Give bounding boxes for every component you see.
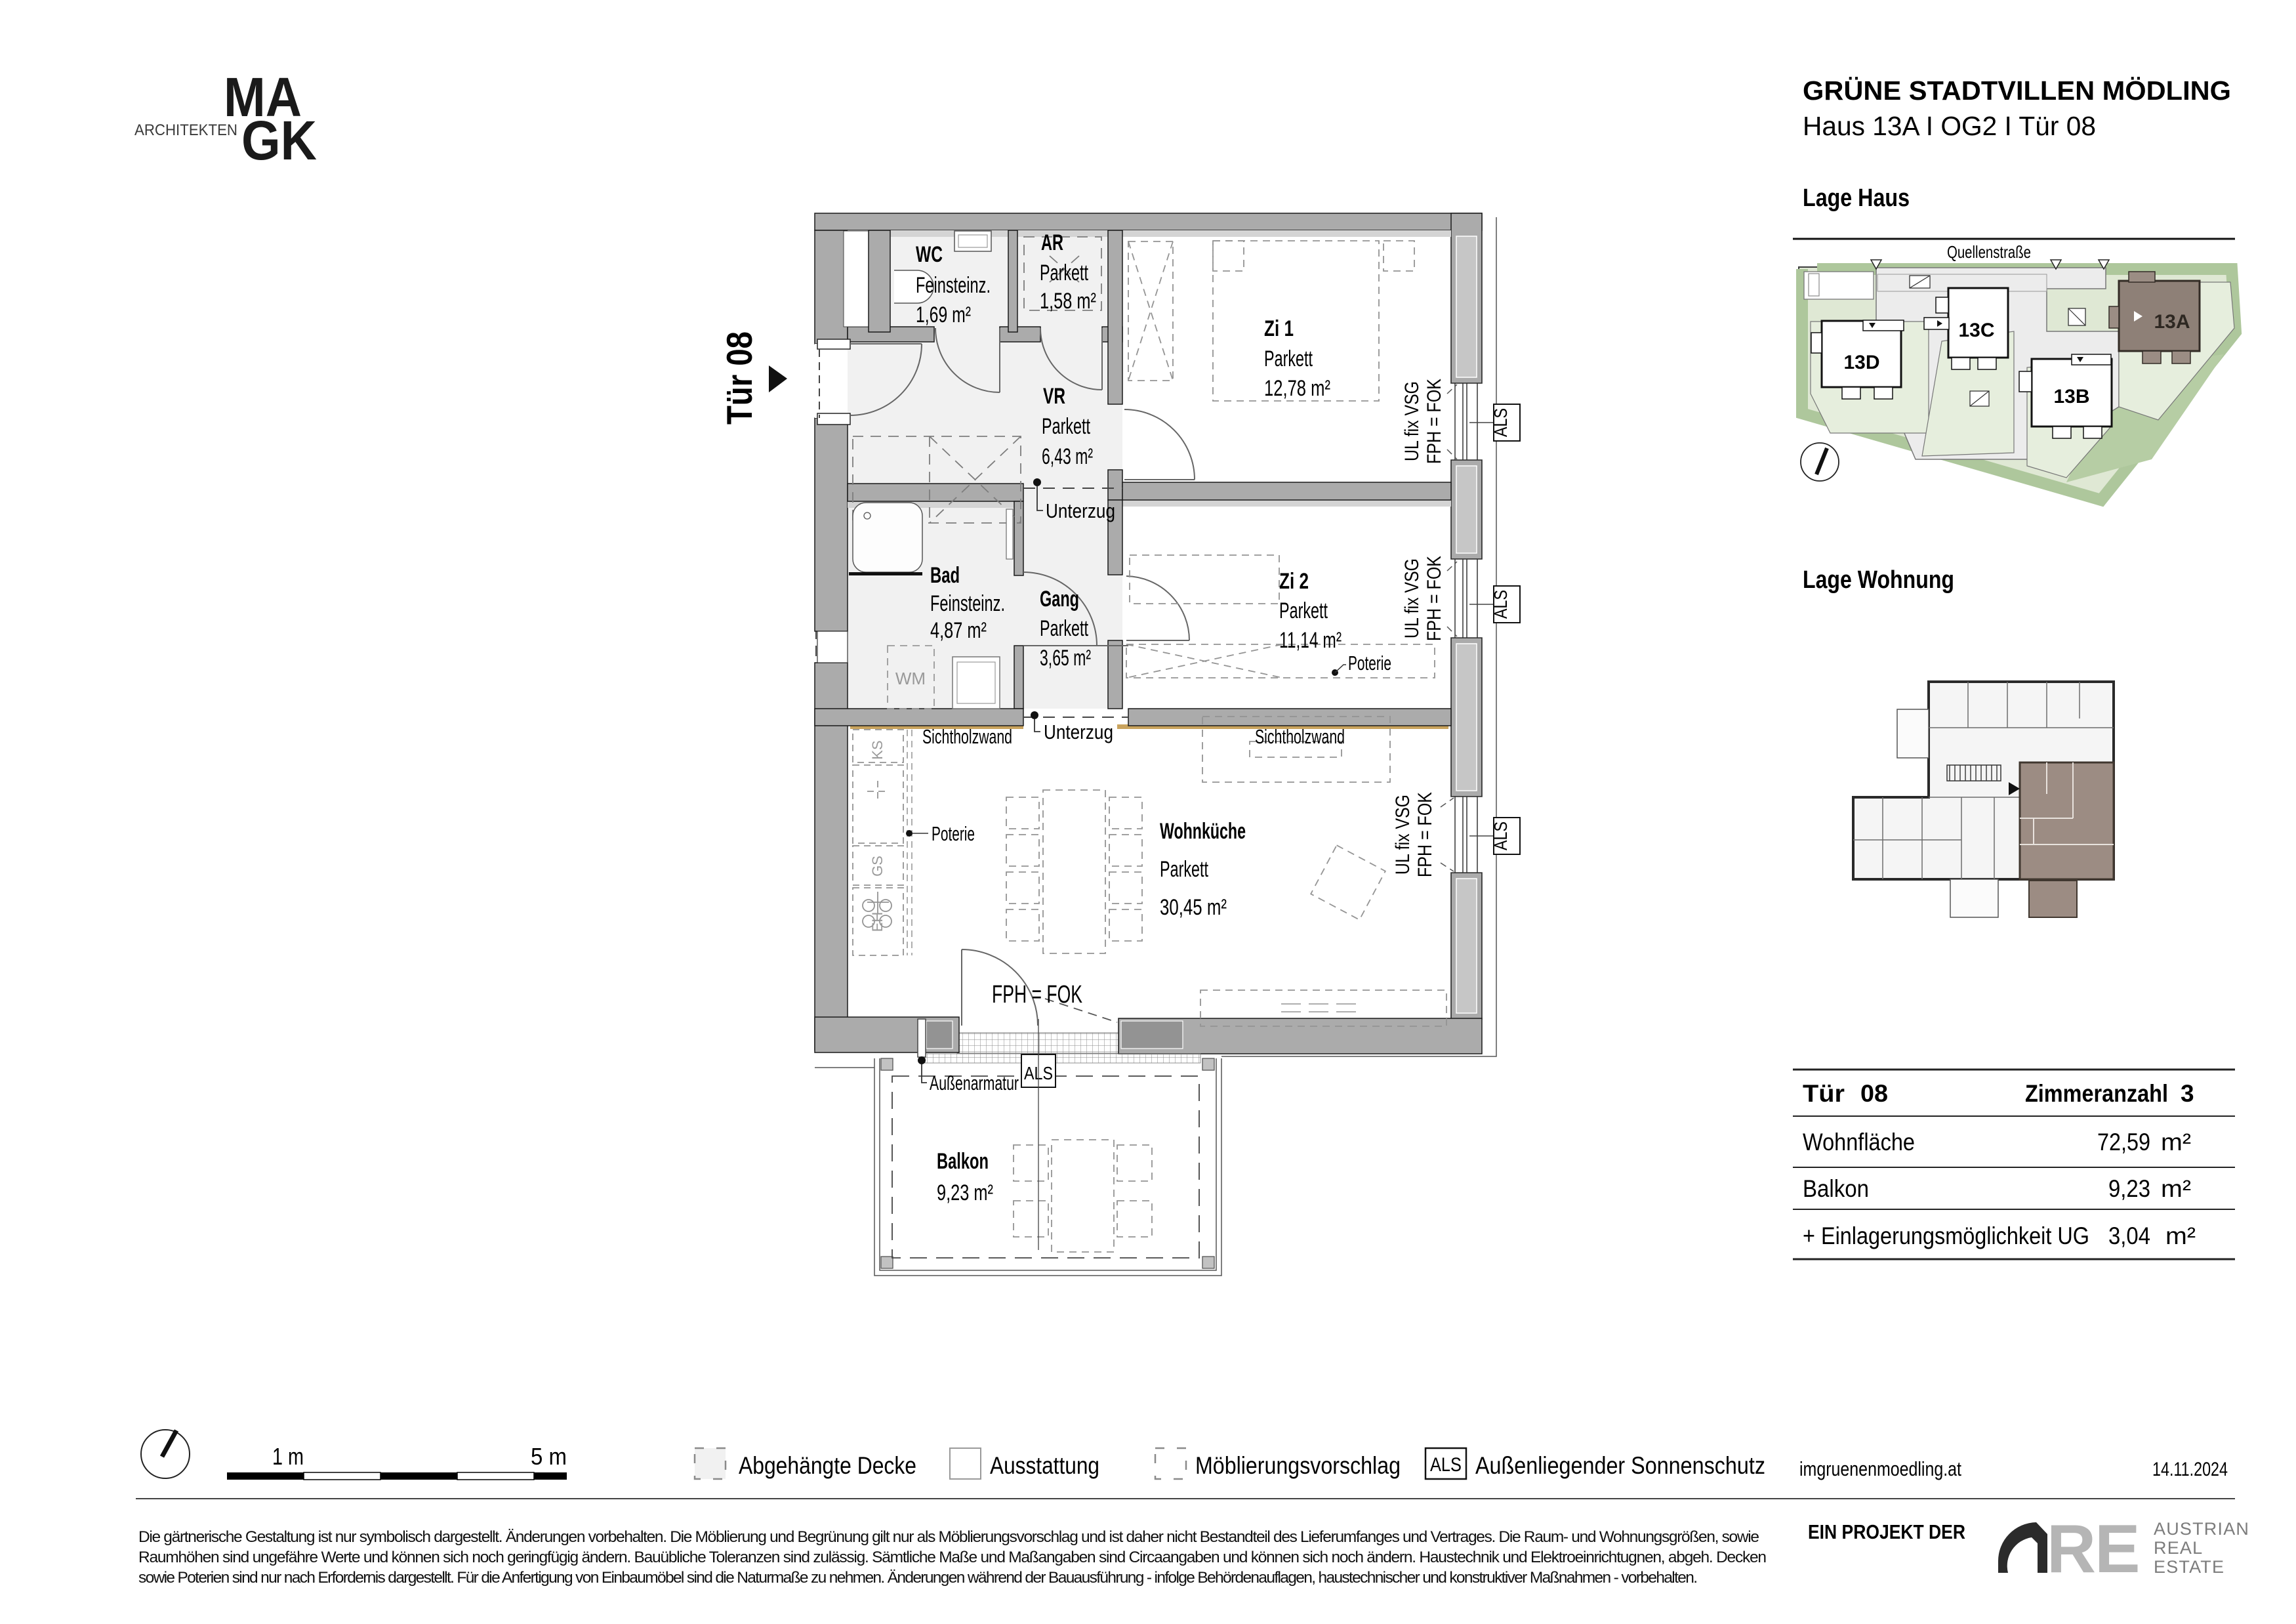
svg-text:1 m: 1 m	[272, 1443, 304, 1470]
svg-text:Unterzug: Unterzug	[1046, 499, 1115, 522]
svg-text:Parkett: Parkett	[1279, 598, 1328, 623]
svg-text:GK: GK	[241, 110, 317, 171]
svg-text:Bad: Bad	[930, 563, 960, 588]
svg-text:Ausstattung: Ausstattung	[990, 1452, 1099, 1479]
svg-text:m²: m²	[2165, 1222, 2196, 1249]
svg-text:1,58 m²: 1,58 m²	[1040, 289, 1096, 314]
svg-text:imgruenenmoedling.at: imgruenenmoedling.at	[1799, 1457, 1961, 1480]
svg-text:Lage Wohnung: Lage Wohnung	[1803, 566, 1954, 594]
svg-text:ALS: ALS	[1490, 408, 1511, 437]
svg-text:ALS: ALS	[1430, 1454, 1462, 1476]
svg-text:UL fix VSG: UL fix VSG	[1392, 795, 1414, 875]
svg-text:6,43 m²: 6,43 m²	[1042, 444, 1093, 469]
svg-text:m²: m²	[2161, 1129, 2191, 1156]
svg-text:13B: 13B	[2053, 386, 2089, 407]
svg-text:14.11.2024: 14.11.2024	[2152, 1459, 2228, 1480]
svg-text:FPH = FOK: FPH = FOK	[1424, 379, 1445, 464]
svg-text:12,78 m²: 12,78 m²	[1264, 376, 1330, 401]
svg-text:REAL: REAL	[2154, 1538, 2203, 1558]
svg-text:ALS: ALS	[1490, 822, 1511, 850]
svg-text:Tür 08: Tür 08	[719, 331, 760, 425]
svg-text:GRÜNE STADTVILLEN MÖDLING: GRÜNE STADTVILLEN MÖDLING	[1803, 75, 2231, 106]
svg-text:AR: AR	[1041, 230, 1063, 255]
svg-text:Tür: Tür	[1803, 1080, 1845, 1107]
svg-text:FPH = FOK: FPH = FOK	[1414, 792, 1436, 877]
svg-text:13D: 13D	[1843, 352, 1879, 373]
svg-text:Zi 1: Zi 1	[1264, 316, 1294, 341]
svg-text:Parkett: Parkett	[1264, 346, 1313, 371]
svg-text:Parkett: Parkett	[1042, 414, 1090, 439]
svg-text:Wohnfläche: Wohnfläche	[1803, 1129, 1915, 1156]
svg-text:m²: m²	[2161, 1175, 2191, 1202]
svg-text:KS: KS	[869, 740, 886, 759]
svg-text:Zimmeranzahl: Zimmeranzahl	[2025, 1080, 2168, 1107]
svg-text:UL fix VSG: UL fix VSG	[1401, 381, 1423, 461]
svg-text:Feinsteinz.: Feinsteinz.	[916, 273, 991, 298]
svg-text:Außenarmatur: Außenarmatur	[930, 1072, 1019, 1094]
svg-text:ESTATE: ESTATE	[2154, 1557, 2224, 1577]
svg-text:Zi 2: Zi 2	[1279, 569, 1309, 594]
svg-text:FPH = FOK: FPH = FOK	[992, 981, 1082, 1009]
svg-text:4,87 m²: 4,87 m²	[930, 618, 987, 643]
svg-text:EIN PROJEKT DER: EIN PROJEKT DER	[1808, 1520, 1965, 1543]
svg-text:ALS: ALS	[1490, 590, 1511, 619]
svg-text:3,65 m²: 3,65 m²	[1040, 646, 1091, 671]
svg-text:3,04: 3,04	[2108, 1222, 2150, 1249]
svg-text:AUSTRIAN: AUSTRIAN	[2154, 1519, 2249, 1539]
svg-text:Quellenstraße: Quellenstraße	[1947, 242, 2031, 262]
svg-text:5 m: 5 m	[531, 1443, 567, 1470]
svg-text:UL fix VSG: UL fix VSG	[1401, 558, 1423, 638]
svg-text:WM: WM	[895, 669, 926, 688]
svg-text:Poterie: Poterie	[932, 822, 975, 845]
svg-text:Sichtholzwand: Sichtholzwand	[1255, 725, 1345, 748]
svg-text:FPH = FOK: FPH = FOK	[1424, 556, 1445, 641]
svg-text:Möblierungsvorschlag: Möblierungsvorschlag	[1195, 1452, 1401, 1479]
svg-text:WC: WC	[916, 242, 943, 267]
svg-text:Feinsteinz.: Feinsteinz.	[930, 591, 1005, 616]
svg-text:11,14 m²: 11,14 m²	[1279, 628, 1342, 653]
svg-text:13C: 13C	[1958, 320, 1994, 341]
svg-text:Parkett: Parkett	[1040, 260, 1088, 285]
svg-text:Gang: Gang	[1040, 587, 1079, 612]
svg-text:13A: 13A	[2154, 311, 2190, 333]
svg-text:Balkon: Balkon	[937, 1149, 989, 1174]
svg-text:Parkett: Parkett	[1160, 857, 1208, 882]
svg-text:Poterie: Poterie	[1348, 652, 1391, 675]
svg-text:Unterzug: Unterzug	[1044, 720, 1113, 743]
svg-text:sowie Poterien sind nur nach E: sowie Poterien sind nur nach Erfordernis…	[138, 1569, 1698, 1587]
svg-text:Die gärtnerische Gestaltung is: Die gärtnerische Gestaltung ist nur symb…	[138, 1528, 1759, 1546]
svg-text:Balkon: Balkon	[1803, 1175, 1869, 1202]
svg-text:VR: VR	[1043, 384, 1065, 409]
svg-text:72,59: 72,59	[2097, 1129, 2150, 1156]
svg-text:ARCHITEKTEN: ARCHITEKTEN	[134, 121, 237, 139]
svg-text:1,69 m²: 1,69 m²	[916, 302, 971, 327]
svg-text:Lage Haus: Lage Haus	[1803, 184, 1910, 212]
svg-text:+ Einlagerungsmöglichkeit UG: + Einlagerungsmöglichkeit UG	[1803, 1222, 2089, 1249]
svg-text:Außenliegender Sonnenschutz: Außenliegender Sonnenschutz	[1475, 1452, 1765, 1479]
svg-text:Haus 13A I OG2 I Tür 08: Haus 13A I OG2 I Tür 08	[1803, 111, 2096, 141]
svg-text:EH: EH	[869, 912, 886, 932]
svg-text:08: 08	[1860, 1080, 1888, 1107]
svg-text:Raumhöhen sind ungefähre Werte: Raumhöhen sind ungefähre Werte und könne…	[138, 1549, 1767, 1566]
svg-text:Abgehängte Decke: Abgehängte Decke	[739, 1452, 916, 1479]
svg-text:9,23 m²: 9,23 m²	[937, 1180, 993, 1205]
svg-text:3: 3	[2181, 1080, 2194, 1107]
svg-text:Sichtholzwand: Sichtholzwand	[922, 725, 1012, 748]
svg-text:GS: GS	[869, 856, 886, 877]
svg-text:30,45 m²: 30,45 m²	[1160, 895, 1227, 920]
svg-text:Wohnküche: Wohnküche	[1160, 819, 1246, 844]
svg-text:Parkett: Parkett	[1040, 616, 1088, 641]
svg-text:9,23: 9,23	[2108, 1175, 2150, 1202]
svg-text:RE: RE	[2047, 1511, 2139, 1587]
